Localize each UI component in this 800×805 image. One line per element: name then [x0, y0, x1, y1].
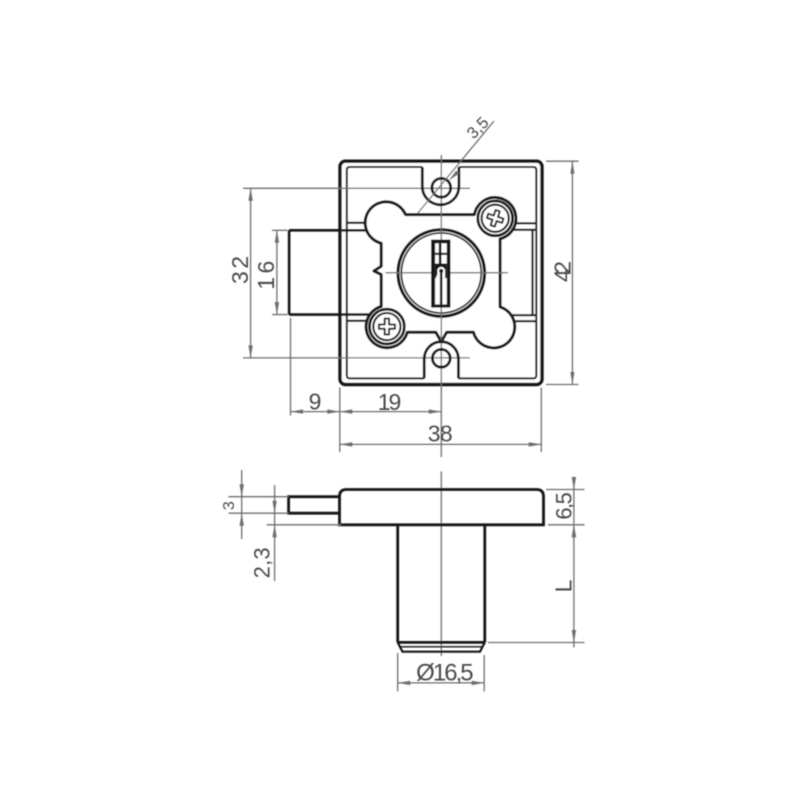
- svg-text:Ø16,5: Ø16,5: [416, 660, 474, 687]
- svg-text:2,3: 2,3: [249, 547, 274, 578]
- svg-text:L: L: [550, 579, 576, 592]
- svg-text:3: 3: [221, 501, 238, 510]
- svg-text:38: 38: [428, 421, 453, 447]
- svg-text:19: 19: [378, 389, 402, 415]
- svg-text:6,5: 6,5: [552, 492, 577, 520]
- svg-text:9: 9: [309, 389, 322, 415]
- svg-text:42: 42: [550, 261, 576, 282]
